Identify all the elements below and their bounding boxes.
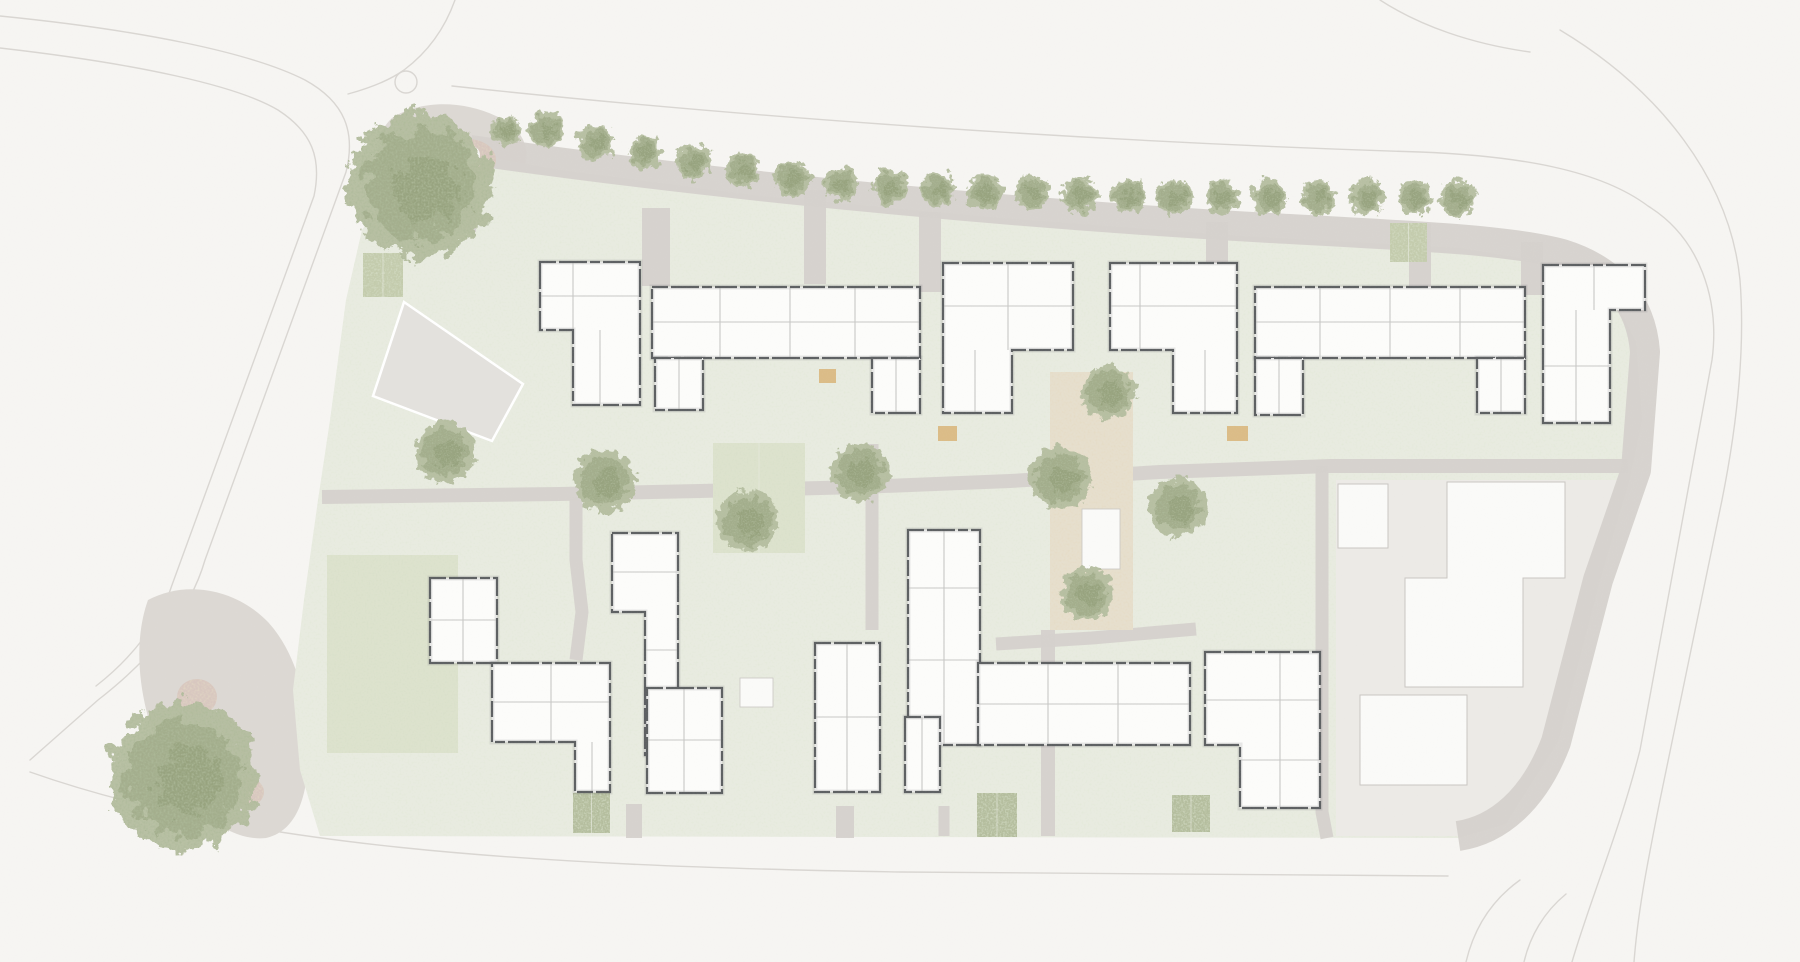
footpath xyxy=(576,497,582,660)
tree-canopy-core xyxy=(1122,189,1137,204)
tree-canopy-core xyxy=(932,183,947,198)
tree-canopy-core xyxy=(594,469,622,497)
site-plan-svg xyxy=(0,0,1800,962)
tree-canopy-core xyxy=(156,748,223,815)
tree-canopy-core xyxy=(1167,496,1193,522)
tree xyxy=(1205,180,1239,214)
tree xyxy=(1398,180,1432,214)
tree xyxy=(1062,177,1098,213)
tree-canopy-core xyxy=(393,157,458,222)
tree xyxy=(577,124,613,160)
neighbor-building xyxy=(1360,695,1467,785)
footpath xyxy=(1322,466,1327,838)
tree xyxy=(1349,179,1385,215)
building-footprint xyxy=(430,578,497,663)
tree-canopy-core xyxy=(1098,381,1122,405)
tree-canopy-core xyxy=(978,185,994,201)
tree xyxy=(1029,447,1091,509)
large-tree xyxy=(109,703,257,851)
pavilion xyxy=(740,678,773,707)
tree xyxy=(774,160,810,196)
tree-canopy-core xyxy=(588,135,604,151)
tree-canopy-core xyxy=(499,124,513,138)
building-footprint xyxy=(655,358,703,410)
tree-canopy-core xyxy=(849,461,875,487)
neighbor-building xyxy=(1338,484,1388,548)
tree-canopy-core xyxy=(1451,191,1467,207)
tree xyxy=(824,167,858,201)
building-footprint xyxy=(815,643,880,792)
building-footprint xyxy=(978,663,1190,745)
tree xyxy=(1081,365,1135,419)
pavilion xyxy=(1082,509,1120,569)
building-footprint xyxy=(652,287,920,358)
tree-canopy-core xyxy=(1409,190,1424,205)
tree-canopy-core xyxy=(1073,188,1089,204)
tree xyxy=(676,144,712,180)
tree xyxy=(1440,180,1476,216)
tree xyxy=(921,173,955,207)
tree xyxy=(628,135,662,169)
tree xyxy=(872,169,908,205)
building-footprint xyxy=(1255,358,1303,415)
tree-canopy-core xyxy=(1216,190,1231,205)
building-footprint xyxy=(908,530,980,745)
tree-canopy-core xyxy=(687,155,703,171)
large-tree xyxy=(348,113,492,257)
tree-canopy-core xyxy=(1049,466,1077,494)
building-footprint xyxy=(1477,358,1525,413)
tree-canopy-core xyxy=(737,509,765,537)
tree-canopy-core xyxy=(540,123,555,138)
tree xyxy=(529,113,563,147)
building-footprint xyxy=(1255,287,1525,358)
site-plan-stage xyxy=(0,0,1800,962)
tree-canopy-core xyxy=(434,440,461,467)
building-footprint xyxy=(647,688,722,793)
timber-deck xyxy=(819,369,836,383)
tree xyxy=(490,115,520,145)
building-footprint xyxy=(905,717,940,792)
tree-canopy-core xyxy=(1026,186,1041,201)
tree-canopy-core xyxy=(1168,190,1184,206)
tree-canopy-core xyxy=(1077,584,1100,607)
road-island xyxy=(395,71,417,93)
tree xyxy=(415,422,475,482)
tree xyxy=(717,490,779,552)
tree-canopy-core xyxy=(1360,190,1376,206)
tree-canopy-core xyxy=(785,171,801,187)
tree xyxy=(574,450,636,512)
timber-deck xyxy=(938,426,957,441)
tree-canopy-core xyxy=(883,180,899,196)
building-footprint xyxy=(872,358,920,413)
tree xyxy=(831,443,889,501)
tree xyxy=(1252,179,1288,215)
tree-canopy-core xyxy=(1263,190,1279,206)
tree xyxy=(1111,179,1145,213)
tree xyxy=(1015,176,1049,210)
tree xyxy=(726,153,760,187)
tree-canopy-core xyxy=(1312,190,1327,205)
tree-canopy-core xyxy=(737,163,752,178)
tree xyxy=(967,174,1003,210)
tree xyxy=(1157,179,1193,215)
timber-deck xyxy=(1227,426,1248,441)
tree-canopy-core xyxy=(639,145,654,160)
tree xyxy=(1301,180,1335,214)
tree xyxy=(1061,568,1113,620)
tree-canopy-core xyxy=(835,177,850,192)
tree xyxy=(1149,478,1207,536)
